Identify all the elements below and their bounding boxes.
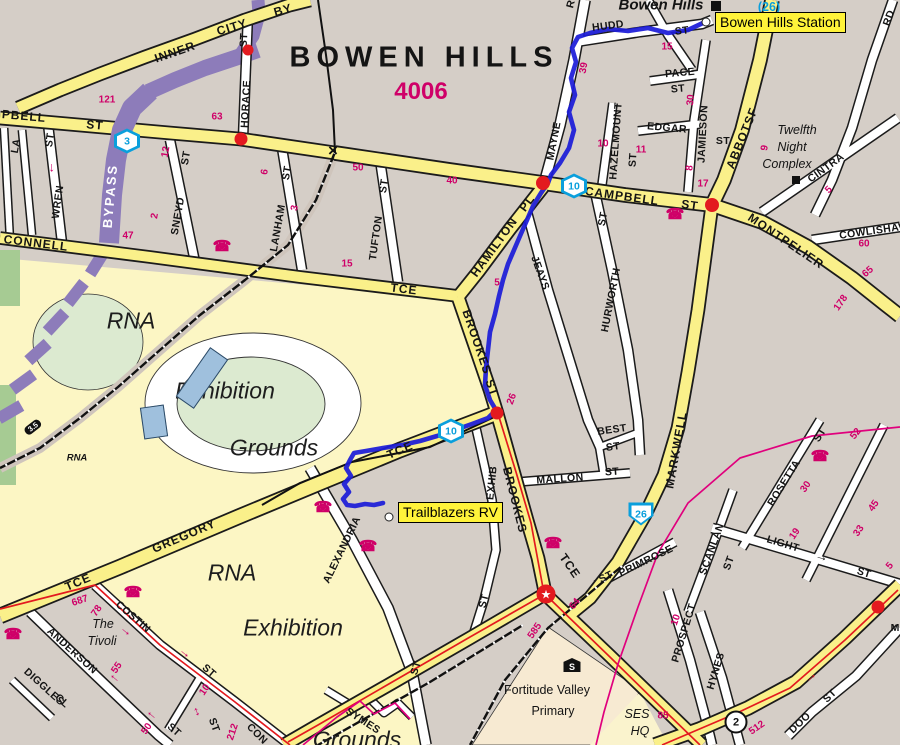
phone-icon: ☎	[811, 447, 830, 465]
label-st: ST	[86, 117, 104, 132]
phone-icon: ☎	[666, 205, 685, 223]
label-ses: SES	[624, 707, 649, 721]
label-8: 8	[684, 165, 695, 172]
label-15: 15	[661, 42, 672, 53]
label-47: 47	[122, 231, 133, 242]
label-st: ST	[670, 82, 685, 95]
phone-icon: ☎	[359, 537, 378, 555]
black-square-marker	[792, 176, 800, 184]
star-intersection-icon: ★	[537, 585, 556, 604]
green-area	[0, 250, 20, 306]
label-rna: RNA	[67, 453, 88, 464]
phone-icon: ☎	[544, 534, 563, 552]
label-st: ST	[280, 165, 294, 181]
label-hq: HQ	[631, 724, 650, 738]
one-way-arrow-icon: →	[47, 162, 62, 175]
label-60: 60	[858, 239, 869, 250]
intersection-dot	[235, 133, 248, 146]
rail-crossing-icon: ×	[328, 141, 338, 161]
road-jeays	[527, 212, 600, 447]
phone-icon: ☎	[4, 625, 23, 643]
label-exhibition: Exhibition	[243, 615, 343, 642]
label-tivoli: Tivoli	[87, 634, 116, 648]
label-63: 63	[211, 112, 222, 123]
label-st: ST	[605, 440, 621, 454]
poi-marker	[385, 513, 394, 522]
label-5: 5	[494, 278, 500, 289]
label-bowen-hills: Bowen Hills	[618, 0, 703, 14]
label-4006: 4006	[394, 78, 447, 106]
phone-icon: ☎	[213, 237, 232, 255]
label-st: ST	[179, 150, 193, 166]
phone-icon: ☎	[314, 498, 333, 516]
label-m: M	[891, 622, 900, 634]
label-twelfth: Twelfth	[777, 123, 816, 137]
route-circle-2: 2	[725, 711, 748, 734]
black-square-marker	[711, 1, 721, 11]
label-rna: RNA	[107, 308, 156, 335]
label-primary: Primary	[531, 704, 574, 718]
label-st: ST	[716, 135, 730, 147]
metroad-shield-number: 10	[441, 422, 461, 441]
label-85: 85	[657, 711, 668, 722]
label-15: 15	[341, 259, 352, 270]
intersection-dot	[705, 198, 719, 212]
intersection-dot	[536, 176, 550, 190]
label-night: Night	[777, 140, 806, 154]
label-rna: RNA	[208, 560, 257, 587]
label-st: ST	[674, 24, 690, 38]
label-30: 30	[685, 94, 697, 106]
label-st: ST	[43, 132, 57, 148]
map-canvas[interactable]: PBELLSTLASTWRENCONNELLTCESNEYDSTLANHAMST…	[0, 0, 900, 745]
metroad-shield-number: 10	[564, 177, 584, 196]
map-render-layer	[0, 0, 900, 745]
label-17: 17	[697, 179, 708, 190]
label-complex: Complex	[762, 157, 811, 171]
intersection-dot	[872, 601, 885, 614]
intersection-dot	[491, 407, 504, 420]
label-10: 10	[597, 139, 608, 150]
poi-label-1[interactable]: Trailblazers RV	[398, 502, 503, 523]
label-grounds: Grounds	[313, 727, 401, 745]
label-40: 40	[446, 176, 457, 187]
label-la: LA	[9, 138, 23, 155]
label-st: ST	[604, 466, 619, 479]
poi-label-0[interactable]: Bowen Hills Station	[715, 12, 846, 33]
label-fortitude-valley: Fortitude Valley	[504, 683, 590, 697]
label-12: 12	[160, 146, 173, 159]
label-grounds: Grounds	[230, 435, 318, 462]
label-the: The	[92, 617, 114, 631]
label-bowen-hills: BOWEN HILLS	[290, 42, 559, 75]
label-st: ST	[377, 178, 391, 194]
phone-icon: ☎	[124, 583, 143, 601]
label-39: 39	[578, 62, 591, 75]
label-121: 121	[99, 95, 116, 106]
railway-north	[318, 0, 335, 152]
intersection-dot	[243, 45, 254, 56]
label-horace: HORACE	[239, 80, 253, 128]
label-50: 50	[352, 163, 363, 174]
label-11: 11	[636, 145, 647, 156]
building	[140, 404, 168, 439]
metroad-shield-number: 3	[117, 132, 137, 151]
poi-marker	[702, 18, 711, 27]
